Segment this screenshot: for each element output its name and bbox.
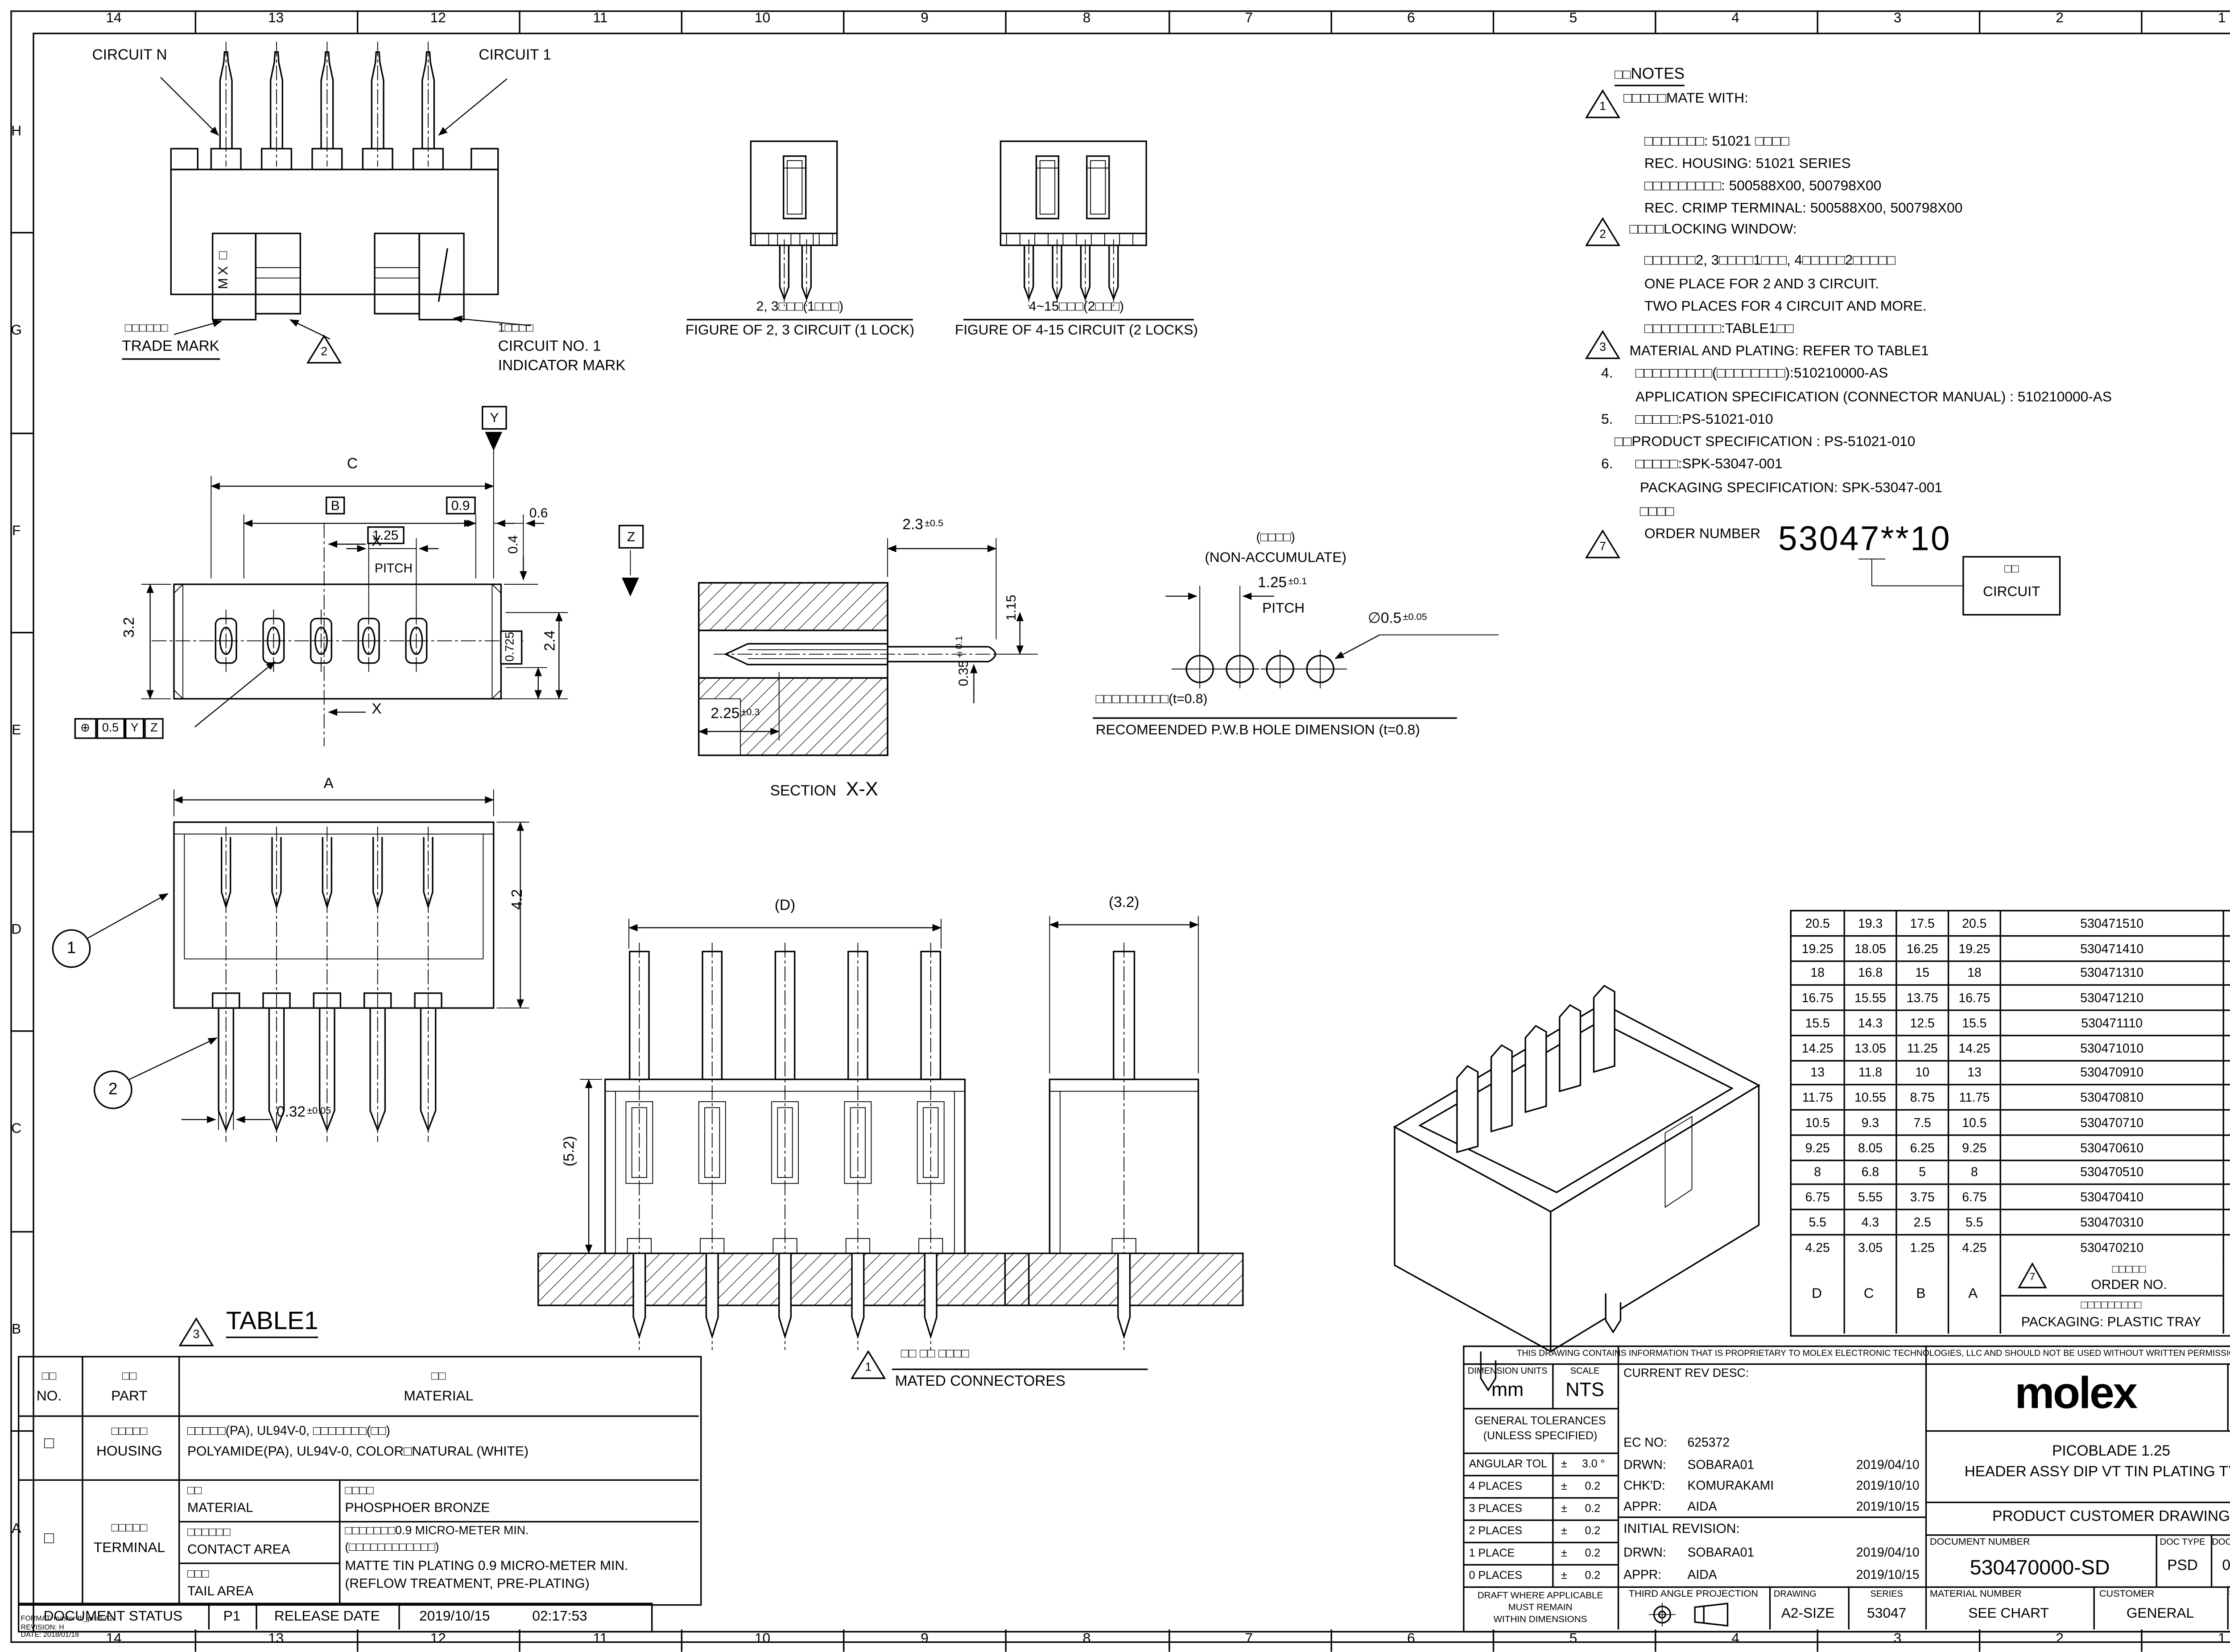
part-table-cell: 6.8 <box>1844 1159 1896 1184</box>
mated-jp: □□ □□ □□□□ <box>901 1347 969 1360</box>
part-table-cell: 5.55 <box>1844 1184 1896 1209</box>
part-table-cell: 9.3 <box>1844 1109 1896 1134</box>
balloon-2: 2 <box>94 1070 132 1109</box>
part-table-cell: 11.25 <box>1895 1034 1948 1059</box>
dim-2-25: 2.25±0.3 <box>710 708 760 723</box>
part-table-cell: 14.25 <box>1790 1034 1844 1059</box>
rev-triangle-2-num: 2 <box>321 347 327 359</box>
part-table-cell: 15 <box>1895 960 1948 985</box>
note2-l1: □□□□□□2, 3□□□□1□□□, 4□□□□□2□□□□□ <box>1644 254 1895 269</box>
drawing-sheet: 14141313121211111010998877665544332211HH… <box>0 0 2230 1652</box>
table1-title: TABLE1 <box>226 1308 318 1338</box>
table1-mat-label: MATERIAL <box>404 1390 473 1405</box>
dim-0-35: 0.35±0.1 <box>956 636 971 686</box>
part-pack-jp: □□□□□□□□□ <box>2081 1299 2142 1311</box>
table-border <box>2211 1534 2212 1586</box>
appr2-date: 2019/10/15 <box>1856 1569 1920 1582</box>
part-table-cell: 13 <box>1790 1059 1844 1084</box>
table1-tmat-label: MATERIAL <box>187 1502 253 1516</box>
initial-rev-label: INITIAL REVISION: <box>1623 1523 1740 1536</box>
pwb-pitch-label: PITCH <box>1262 602 1305 617</box>
projection-label: THIRD ANGLE PROJECTION <box>1629 1591 1758 1601</box>
note1-l2: REC. HOUSING: 51021 SERIES <box>1644 157 1851 172</box>
table-border <box>2227 1586 2229 1630</box>
rev-triangle-3-table1: 3 <box>178 1317 214 1347</box>
part-table-cell: 9.25 <box>1790 1134 1844 1159</box>
appr-value: AIDA <box>1688 1500 1717 1514</box>
dim-c: C <box>347 458 358 474</box>
circuit-1-label: CIRCUIT 1 <box>479 49 551 65</box>
table1-tail-label: TAIL AREA <box>187 1585 253 1599</box>
doc-num-label: DOCUMENT NUMBER <box>1930 1539 2030 1549</box>
note5-jp: □□□□□:PS-51021-010 <box>1635 413 1773 428</box>
tol-3-label: 3 PLACES <box>1469 1503 1522 1515</box>
part-table-col-c: C <box>1864 1288 1874 1302</box>
table1-plate-l4: (REFLOW TREATMENT, PRE-PLATING) <box>345 1578 589 1591</box>
part-pack-label: PACKAGING: PLASTIC TRAY <box>2021 1316 2201 1330</box>
part-table-cell: 530470610 <box>2000 1134 2223 1159</box>
dim-d-ref: (D) <box>775 900 795 915</box>
part-table-col-a: A <box>1968 1288 1978 1302</box>
part-table-cell: 10 <box>1895 1059 1948 1084</box>
dim-5-2-ref: (5.2) <box>563 1136 579 1167</box>
table-border <box>1463 1408 1618 1409</box>
release-date-label: RELEASE DATE <box>274 1610 380 1625</box>
fcf-datum2: Z <box>145 718 164 739</box>
chkd-value: KOMURAKAMI <box>1688 1479 1774 1493</box>
molex-logo: molex <box>2015 1371 2136 1417</box>
part-table-cell: 530471010 <box>2000 1034 2223 1059</box>
release-time-value: 02:17:53 <box>532 1610 587 1625</box>
table1-housing-label: HOUSING <box>96 1445 162 1460</box>
part-table-cell: 3.75 <box>1895 1184 1948 1209</box>
table-border <box>1463 1564 1618 1565</box>
note6-jp: □□□□□:SPK-53047-001 <box>1635 458 1783 473</box>
scale-value: NTS <box>1565 1379 1604 1400</box>
part-table-cell: 14.3 <box>1844 1009 1896 1034</box>
table1-tail-jp: □□□ <box>187 1569 209 1581</box>
appr-date: 2019/10/15 <box>1856 1500 1920 1514</box>
notes-title: □□NOTES <box>1615 67 1685 86</box>
part-table-cell: 11.8 <box>1844 1059 1896 1084</box>
datum-z: Z <box>627 529 635 544</box>
product-desc-1: PICOBLADE 1.25 <box>2052 1445 2170 1461</box>
gen-tol-2: (UNLESS SPECIFIED) <box>1483 1430 1598 1442</box>
datum-z-flag: Z <box>619 525 644 549</box>
table-border <box>1463 1586 2230 1588</box>
order-number-value: 53047**10 <box>1778 520 1951 556</box>
part-table-cell: 11 <box>2223 1009 2230 1034</box>
table-border <box>2094 1586 2095 1630</box>
table-border <box>178 1563 339 1564</box>
table-border <box>2156 1534 2157 1586</box>
angular-tol-label: ANGULAR TOL <box>1469 1458 1547 1470</box>
front-logo: MX□ <box>217 245 231 289</box>
table-border <box>1895 1258 1897 1334</box>
part-table-cell: 11.75 <box>1790 1084 1844 1109</box>
datum-y-flag: Y <box>482 406 507 430</box>
current-rev-label: CURRENT REV DESC: <box>1623 1368 1749 1380</box>
table-border <box>1769 1586 1771 1630</box>
part-table-cell: 14 <box>2223 935 2230 960</box>
pwb-en: (NON-ACCUMULATE) <box>1205 552 1346 566</box>
table-border <box>178 1521 699 1522</box>
draft-l2: MUST REMAIN <box>1508 1604 1572 1614</box>
table1-housing-val-jp: □□□□□(PA), UL94V-0, □□□□□□□(□□) <box>187 1424 390 1437</box>
part-table-cell: 530470210 <box>2000 1234 2223 1259</box>
note3-en: MATERIAL AND PLATING: REFER TO TABLE1 <box>1630 345 1929 359</box>
table1-part-jp: □□ <box>122 1371 136 1383</box>
draft-l1: DRAFT WHERE APPLICABLE <box>1478 1592 1603 1602</box>
note1-l4: REC. CRIMP TERMINAL: 500588X00, 500798X0… <box>1644 202 1963 217</box>
part-table-cell: 6.75 <box>1948 1184 2000 1209</box>
drwn2-date: 2019/04/10 <box>1856 1546 1920 1560</box>
order-circuit-box: □□ CIRCUIT <box>1962 556 2061 615</box>
part-table-cell: 6.75 <box>1790 1184 1844 1209</box>
tol-3-pm: ± <box>1561 1503 1567 1515</box>
part-table-cell: 3.05 <box>1844 1234 1896 1259</box>
table-border <box>1925 1534 2230 1536</box>
doc-part-value: 000 <box>2222 1560 2230 1575</box>
table1-no-label: NO. <box>37 1390 62 1405</box>
chkd-label: CHK'D: <box>1623 1479 1665 1493</box>
part-table-col-d: D <box>1812 1288 1822 1302</box>
drwn2-value: SOBARA01 <box>1688 1546 1755 1560</box>
dim-b: B <box>326 496 345 515</box>
part-table-body: 20.519.317.520.55304715101519.2518.0516.… <box>1790 910 2230 1259</box>
dim-0-32: 0.32±0.05 <box>277 1106 331 1122</box>
table-border <box>256 1603 257 1630</box>
doc-title: PRODUCT CUSTOMER DRAWING <box>1992 1511 2230 1526</box>
part-table-cell: 6 <box>2223 1134 2230 1159</box>
table-border <box>1463 1453 1618 1454</box>
table1-tmat-jp: □□ <box>187 1485 202 1498</box>
table1-contact-jp: □□□□□□ <box>187 1527 231 1540</box>
rev-triangle-7-notes: 7 <box>1585 529 1621 559</box>
customer-value: GENERAL <box>2127 1607 2194 1622</box>
table-border <box>1844 1258 1845 1334</box>
drwn-date: 2019/04/10 <box>1856 1458 1920 1472</box>
part-table-cell: 530471210 <box>2000 985 2223 1010</box>
appr-label: APPR: <box>1623 1500 1661 1514</box>
note2-l3: TWO PLACES FOR 4 CIRCUIT AND MORE. <box>1644 300 1927 315</box>
part-table-cell: 18.05 <box>1844 935 1896 960</box>
table1-terminal-label: TERMINAL <box>94 1542 165 1557</box>
part-table-cell: 13.75 <box>1895 985 1948 1010</box>
pwb-pitch-dim: 1.25±0.1 <box>1258 577 1307 592</box>
note3-jp: □□□□□□□□□:TABLE1□□ <box>1644 322 1794 337</box>
part-order-jp: □□□□□ <box>2112 1264 2146 1275</box>
table-border <box>1463 1475 1618 1476</box>
fig23-caption-en: FIGURE OF 2, 3 CIRCUIT (1 LOCK) <box>686 324 914 339</box>
dim-units-label: DIMENSION UNITS <box>1468 1368 1548 1377</box>
fig-4-15-circuit <box>963 141 1194 320</box>
tol-0-pm: ± <box>1561 1570 1567 1582</box>
note5-no: 5. <box>1601 413 1613 428</box>
part-table-cell: 6.25 <box>1895 1134 1948 1159</box>
part-table-cell: 12.5 <box>1895 1009 1948 1034</box>
isometric-view <box>1395 986 1759 1390</box>
part-table-cell: 15.5 <box>1948 1009 2000 1034</box>
indicator-jp: 1□□□□ <box>498 322 533 335</box>
table-border <box>18 1415 699 1417</box>
feature-control-frame: ⊕0.5YZ <box>74 718 164 739</box>
part-table-cell: 9.25 <box>1948 1134 2000 1159</box>
tol-1-value: 0.2 <box>1585 1548 1601 1559</box>
order-number-leader <box>1858 559 1962 586</box>
part-table-cell: 3 <box>2223 1209 2230 1234</box>
customer-label: CUSTOMER <box>2099 1591 2155 1601</box>
table-border <box>1463 1520 1618 1521</box>
pwb-caption-jp: □□□□□□□□□(t=0.8) <box>1096 693 1208 706</box>
x-label-lower: X <box>372 703 381 719</box>
part-table-cell: 5 <box>2223 1159 2230 1184</box>
dim-2-3: 2.3±0.5 <box>902 519 943 534</box>
tol-4-label: 4 PLACES <box>1469 1481 1522 1492</box>
fcf-position-icon: ⊕ <box>74 718 96 739</box>
drawing-label: DRAWING <box>1774 1591 1817 1600</box>
tol-4-value: 0.2 <box>1585 1481 1601 1492</box>
part-table-cell: 16.75 <box>1790 985 1844 1010</box>
part-table-col-b: B <box>1916 1288 1925 1302</box>
note2-head: □□□□LOCKING WINDOW: <box>1630 223 1797 238</box>
part-table-cell: 8.05 <box>1844 1134 1896 1159</box>
angular-tol-value: 3.0 ° <box>1582 1458 1605 1470</box>
part-table-cell: 5 <box>1895 1159 1948 1184</box>
angular-tol-pm: ± <box>1561 1458 1567 1470</box>
table-border <box>1463 1363 2230 1365</box>
tol-0-value: 0.2 <box>1585 1570 1601 1582</box>
doc-type-value: PSD <box>2167 1560 2198 1575</box>
part-table-cell: 530470810 <box>2000 1084 2223 1109</box>
rev-triangle-1-notes: 1 <box>1585 89 1621 119</box>
order-circuit-label: CIRCUIT <box>1983 586 2040 600</box>
doc-status-value: P1 <box>223 1610 241 1625</box>
product-desc-2: HEADER ASSY DIP VT TIN PLATING TYPE <box>1965 1466 2230 1482</box>
doc-num-value: 530470000-SD <box>1970 1557 2110 1578</box>
appr2-label: APPR: <box>1623 1569 1661 1582</box>
side-view <box>88 789 529 1142</box>
tol-0-label: 0 PLACES <box>1469 1570 1522 1582</box>
part-table-cell: 11.75 <box>1948 1084 2000 1109</box>
table1-tmat-val-en: PHOSPHOER BRONZE <box>345 1502 490 1516</box>
table-border <box>208 1603 210 1630</box>
part-table-cell: 4.3 <box>1844 1209 1896 1234</box>
part-table-cell: 8 <box>1790 1159 1844 1184</box>
table-border <box>1948 1258 1949 1334</box>
balloon-1: 1 <box>52 929 91 968</box>
note5-en: □□PRODUCT SPECIFICATION : PS-51021-010 <box>1615 436 1915 450</box>
rev-triangle-7-table: 7 <box>2018 1262 2048 1292</box>
part-table-cell: 530470510 <box>2000 1159 2223 1184</box>
part-table-cell: 10.55 <box>1844 1084 1896 1109</box>
datum-y: Y <box>490 410 499 425</box>
pwb-jp: (□□□□) <box>1256 531 1295 544</box>
format-footnote: FORMAT: master-tb_prod-A2REVISION: HDATE… <box>21 1616 113 1641</box>
part-table-cell: 18 <box>1948 960 2000 985</box>
part-table-cell: 8.75 <box>1895 1084 1948 1109</box>
part-table-cell: 530470310 <box>2000 1209 2223 1234</box>
part-table-cell: 17.5 <box>1895 910 1948 935</box>
part-table-cell: 20.5 <box>1790 910 1844 935</box>
x-label-upper: X <box>372 535 381 551</box>
drawing-value: A2-SIZE <box>1781 1607 1835 1622</box>
part-table-cell: 15 <box>2223 910 2230 935</box>
table1-terminal-jp: □□□□□ <box>111 1523 148 1535</box>
dim-0-725: 0.725 <box>500 630 522 665</box>
rev-triangle-3-notes: 3 <box>1585 330 1621 360</box>
table1-tmat-val-jp: □□□□ <box>345 1485 373 1498</box>
part-table-cell: 7.5 <box>1895 1109 1948 1134</box>
table1-plate-l2: (□□□□□□□□□□□□) <box>345 1542 439 1554</box>
order-number-jp: □□□□ <box>1640 505 1674 520</box>
part-table-cell: 530471510 <box>2000 910 2223 935</box>
note4-en: APPLICATION SPECIFICATION (CONNECTOR MAN… <box>1635 391 2112 406</box>
series-value: 53047 <box>1867 1607 1906 1622</box>
dim-2-4: 2.4 <box>544 630 560 651</box>
indicator-line2: INDICATOR MARK <box>498 360 626 376</box>
fig415-caption-en: FIGURE OF 4-15 CIRCUIT (2 LOCKS) <box>955 324 1198 339</box>
part-table-cell: 5.5 <box>1790 1209 1844 1234</box>
part-table-cell: 18 <box>1790 960 1844 985</box>
part-table-cell: 2.5 <box>1895 1209 1948 1234</box>
note6-no: 6. <box>1601 458 1613 473</box>
rev-triangle-2: 2 <box>306 335 342 364</box>
doc-part-label: DOC PART <box>2212 1539 2230 1548</box>
part-table-cell: 16.25 <box>1895 935 1948 960</box>
ec-value: 625372 <box>1688 1436 1730 1450</box>
front-view <box>161 41 531 339</box>
pcb-side-view <box>1005 916 1243 1350</box>
part-table-cell: 4.25 <box>1790 1234 1844 1259</box>
table1-housing-val-en: POLYAMIDE(PA), UL94V-0, COLOR□NATURAL (W… <box>187 1445 529 1459</box>
part-table-cell: 530470410 <box>2000 1184 2223 1209</box>
part-table-cell: 13.05 <box>1844 1034 1896 1059</box>
tol-2-pm: ± <box>1561 1525 1567 1537</box>
doc-type-label: DOC TYPE <box>2160 1539 2205 1548</box>
order-number-label: ORDER NUMBER <box>1644 528 1760 542</box>
table-border <box>1925 1430 2230 1432</box>
third-angle-projection-icon <box>1644 1603 1743 1627</box>
part-table-cell: 4.25 <box>1948 1234 2000 1259</box>
dim-3-2-ref: (3.2) <box>1109 896 1140 912</box>
section-caption: SECTION X-X <box>770 779 878 801</box>
pitch-label: PITCH <box>375 562 413 575</box>
part-table-cell: 16.75 <box>1948 985 2000 1010</box>
part-table-cell: 530471310 <box>2000 960 2223 985</box>
table1-housing-jp: □□□□□ <box>111 1426 148 1438</box>
part-table-cell: 530471410 <box>2000 935 2223 960</box>
part-table-cell: 4 <box>2223 1184 2230 1209</box>
material-number-value: SEE CHART <box>1968 1607 2049 1622</box>
trade-mark-label: TRADE MARK <box>122 340 219 359</box>
pwb-dia-dim: ∅0.5±0.05 <box>1368 612 1427 628</box>
top-view <box>141 433 638 746</box>
material-number-label: MATERIAL NUMBER <box>1930 1591 2022 1601</box>
tol-2-label: 2 PLACES <box>1469 1525 1522 1537</box>
table1-plate-l1: □□□□□□□0.9 MICRO-METER MIN. <box>345 1525 529 1538</box>
part-table-cell: 530471110 <box>2000 1009 2223 1034</box>
tol-1-label: 1 PLACE <box>1469 1548 1515 1559</box>
part-table-cell: 19.3 <box>1844 910 1896 935</box>
part-table-cell: 530470910 <box>2000 1059 2223 1084</box>
dim-0-9: 0.9 <box>446 496 475 515</box>
proprietary-notice: THIS DRAWING CONTAINS INFORMATION THAT I… <box>1517 1350 2230 1359</box>
part-table-cell: 12 <box>2223 985 2230 1010</box>
tol-2-value: 0.2 <box>1585 1525 1601 1537</box>
drwn-label: DRWN: <box>1623 1458 1666 1472</box>
trade-mark-jp: □□□□□□ <box>125 322 168 335</box>
circuit-n-label: CIRCUIT N <box>92 49 167 65</box>
table-border <box>2000 1295 2223 1296</box>
part-table-cell: 530470710 <box>2000 1109 2223 1134</box>
dim-a: A <box>324 777 334 793</box>
note6-en: PACKAGING SPECIFICATION: SPK-53047-001 <box>1640 482 1942 496</box>
part-table-cell: 16.8 <box>1844 960 1896 985</box>
table-border <box>2227 1363 2229 1430</box>
ec-label: EC NO: <box>1623 1436 1667 1450</box>
part-table-cell: 15.55 <box>1844 985 1896 1010</box>
dim-0-4: 0.4 <box>507 535 521 554</box>
fig415-caption-jp: 4~15□□□(2□□□) <box>1029 300 1124 314</box>
note4-no: 4. <box>1601 367 1613 382</box>
table-border <box>1848 1586 1850 1630</box>
tol-1-pm: ± <box>1561 1548 1567 1559</box>
note1-head: □□□□□MATE WITH: <box>1623 92 1748 107</box>
part-table-cell: 10.5 <box>1790 1109 1844 1134</box>
rev-triangle-1-mated: 1 <box>851 1350 886 1380</box>
part-table-cell: 10 <box>2223 1034 2230 1059</box>
part-order-label: ORDER NO. <box>2091 1279 2167 1293</box>
chkd-date: 2019/10/10 <box>1856 1479 1920 1493</box>
table-border <box>1618 1516 1925 1518</box>
table1-no-jp: □□ <box>42 1371 56 1383</box>
note1-l1: □□□□□□□: 51021 □□□□ <box>1644 135 1789 150</box>
note4-jp: □□□□□□□□□(□□□□□□□□):510210000-AS <box>1635 367 1888 382</box>
table-border <box>1463 1542 1618 1543</box>
scale-label: SCALE <box>1570 1368 1600 1377</box>
order-circuit-jp: □□ <box>2004 563 2019 576</box>
draft-l3: WITHIN DIMENSIONS <box>1494 1616 1587 1626</box>
appr2-value: AIDA <box>1688 1569 1717 1582</box>
part-table-cell: 7 <box>2223 1109 2230 1134</box>
table1-plate-l3: MATTE TIN PLATING 0.9 MICRO-METER MIN. <box>345 1560 628 1574</box>
drwn2-label: DRWN: <box>1623 1546 1666 1560</box>
table1-part-label: PART <box>111 1390 148 1405</box>
part-table-cell: 1.25 <box>1895 1234 1948 1259</box>
part-table-cell: 19.25 <box>1790 935 1844 960</box>
table-border <box>1925 1502 2230 1503</box>
release-date-value: 2019/10/15 <box>419 1610 490 1625</box>
part-table-cell: 15.5 <box>1790 1009 1844 1034</box>
dim-1-15: 1.15 <box>1005 595 1019 620</box>
part-table-cell: 20.5 <box>1948 910 2000 935</box>
part-table-cell: 19.25 <box>1948 935 2000 960</box>
table-border <box>398 1603 400 1630</box>
part-table-cell: 13 <box>2223 960 2230 985</box>
table-border <box>18 1479 699 1481</box>
note1-l3: □□□□□□□□□: 500588X00, 500798X00 <box>1644 180 1881 194</box>
indicator-line1: CIRCUIT NO. 1 <box>498 340 601 356</box>
tol-4-pm: ± <box>1561 1481 1567 1492</box>
fig23-caption-jp: 2, 3□□□(1□□□) <box>756 300 843 314</box>
rev-triangle-2-notes: 2 <box>1585 217 1621 247</box>
part-table-cell: 10.5 <box>1948 1109 2000 1134</box>
pwb-caption-en: RECOMEENDED P.W.B HOLE DIMENSION (t=0.8) <box>1096 724 1420 739</box>
dim-3-2: 3.2 <box>124 617 139 637</box>
part-table-cell: 5.5 <box>1948 1209 2000 1234</box>
fcf-datum1: Y <box>124 718 144 739</box>
